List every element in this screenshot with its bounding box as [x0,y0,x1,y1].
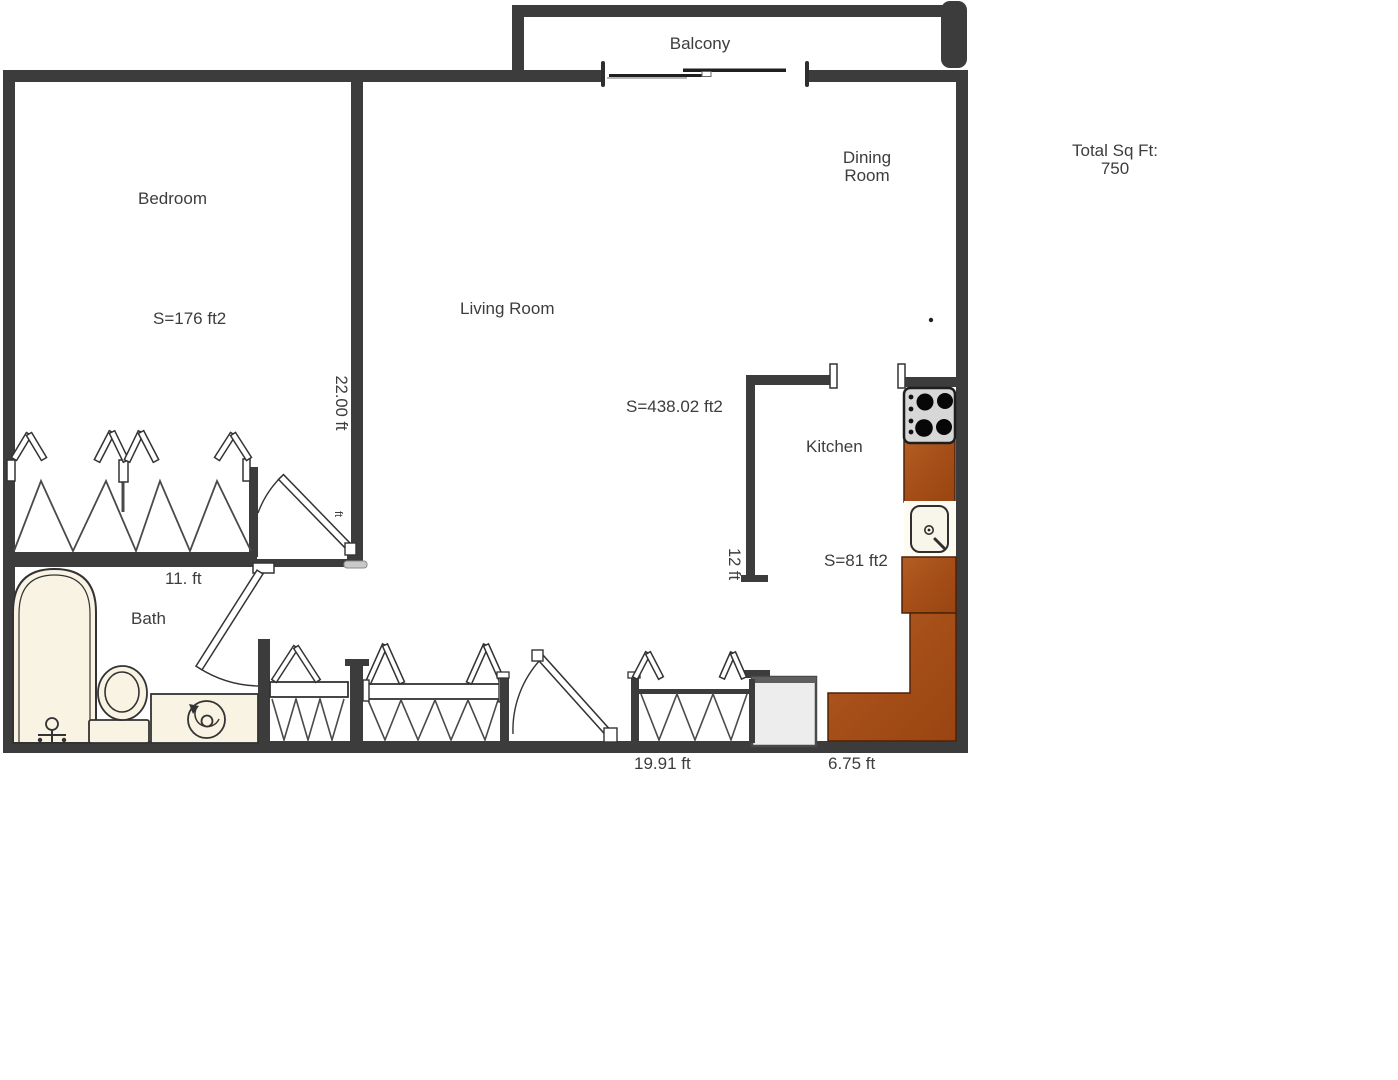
svg-text:12 ft: 12 ft [725,548,743,581]
svg-text:Total Sq Ft:: Total Sq Ft: [1072,141,1158,160]
svg-text:Kitchen: Kitchen [806,437,863,456]
svg-text:11. ft: 11. ft [165,569,202,588]
svg-text:Living Room: Living Room [460,299,555,318]
svg-text:ft: ft [332,511,344,517]
svg-text:6.75 ft: 6.75 ft [828,754,876,773]
svg-text:750: 750 [1101,159,1129,178]
svg-text:Bath: Bath [131,609,166,628]
svg-text:S=176 ft2: S=176 ft2 [153,309,226,328]
svg-text:Balcony: Balcony [670,34,731,53]
svg-text:19.91 ft: 19.91 ft [634,754,691,773]
svg-text:Bedroom: Bedroom [138,189,207,208]
svg-text:S=438.02 ft2: S=438.02 ft2 [626,397,723,416]
svg-text:S=81 ft2: S=81 ft2 [824,551,888,570]
svg-text:Room: Room [844,166,889,185]
svg-text:Dining: Dining [843,148,891,167]
svg-text:22.00 ft: 22.00 ft [332,375,350,430]
